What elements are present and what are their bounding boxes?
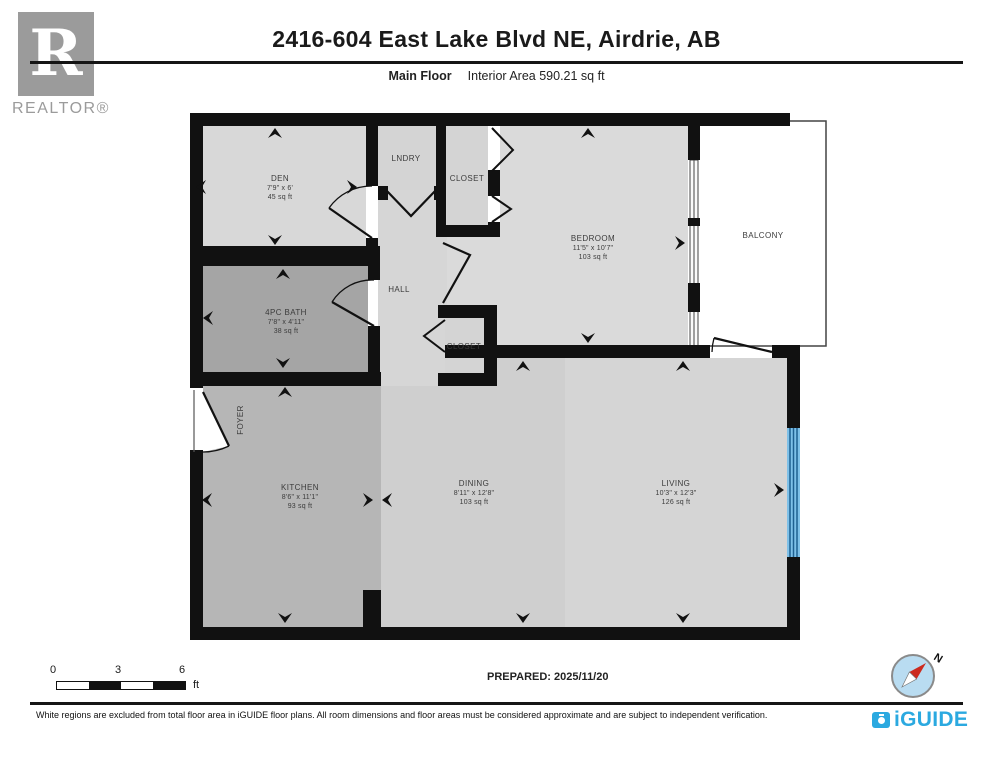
dining-label: DINING xyxy=(459,479,489,488)
compass-icon: N xyxy=(885,643,955,705)
scale-tick-3: 3 xyxy=(115,664,121,676)
realtor-logo: R REALTOR® xyxy=(12,12,132,118)
page-title: 2416-604 East Lake Blvd NE, Airdrie, AB xyxy=(0,26,993,53)
realtor-r-icon: R xyxy=(18,12,94,96)
bedroom-window xyxy=(690,160,698,346)
closet-label: CLOSET xyxy=(450,174,484,183)
scale-bar xyxy=(56,681,186,690)
iguide-wordmark: iGUIDE xyxy=(894,708,968,732)
living-label: LIVING xyxy=(662,479,691,488)
living-area: 126 sq ft xyxy=(662,499,691,506)
foyer-label: FOYER xyxy=(236,405,245,435)
realtor-r-letter: R xyxy=(29,22,82,86)
floorplan-drawing: DEN 7'9" x 6' 45 sq ft LNDRY CLOSET BEDR… xyxy=(185,108,865,648)
bath-dims: 7'8" x 4'11" xyxy=(268,319,305,326)
scale-tick-0: 0 xyxy=(50,664,56,676)
room-dining-fill xyxy=(381,386,565,627)
bedroom-area: 103 sq ft xyxy=(579,254,608,261)
bedroom-dims: 11'5" x 10'7" xyxy=(573,245,614,252)
prepared-date: PREPARED: 2025/11/20 xyxy=(487,671,608,683)
disclaimer-text: White regions are excluded from total fl… xyxy=(36,710,767,720)
scale-tick-6: 6 xyxy=(179,664,185,676)
kitchen-label: KITCHEN xyxy=(281,483,319,492)
kitchen-area: 93 sq ft xyxy=(288,503,313,510)
dining-dims: 8'11" x 12'8" xyxy=(454,490,495,497)
closet2-label: CLOSET xyxy=(447,342,481,351)
compass-north-label: N xyxy=(931,651,944,665)
floor-subtitle: Main FloorInterior Area 590.21 sq ft xyxy=(0,69,993,83)
dining-area: 103 sq ft xyxy=(460,499,489,506)
iguide-logo: iGUIDE xyxy=(872,708,968,732)
header-divider xyxy=(30,61,963,64)
bedroom-label: BEDROOM xyxy=(571,234,615,243)
scale-unit-label: ft xyxy=(193,679,199,691)
footer-divider xyxy=(30,702,963,705)
interior-area-label: Interior Area 590.21 sq ft xyxy=(468,69,605,83)
floor-label: Main Floor xyxy=(388,69,451,83)
den-area: 45 sq ft xyxy=(268,194,293,201)
hall-label: HALL xyxy=(388,285,410,294)
realtor-wordmark: REALTOR® xyxy=(12,100,132,118)
kitchen-dims: 8'6" x 11'1" xyxy=(282,494,319,501)
camera-icon xyxy=(872,712,890,728)
laundry-label: LNDRY xyxy=(392,154,421,163)
floorplan-page: R REALTOR® 2416-604 East Lake Blvd NE, A… xyxy=(0,0,993,768)
living-window xyxy=(787,428,800,557)
balcony-label: BALCONY xyxy=(742,231,783,240)
bath-label: 4PC BATH xyxy=(265,308,307,317)
den-label: DEN xyxy=(271,174,289,183)
living-dims: 10'3" x 12'3" xyxy=(656,490,697,497)
den-dims: 7'9" x 6' xyxy=(267,185,293,192)
bath-area: 38 sq ft xyxy=(274,328,299,335)
